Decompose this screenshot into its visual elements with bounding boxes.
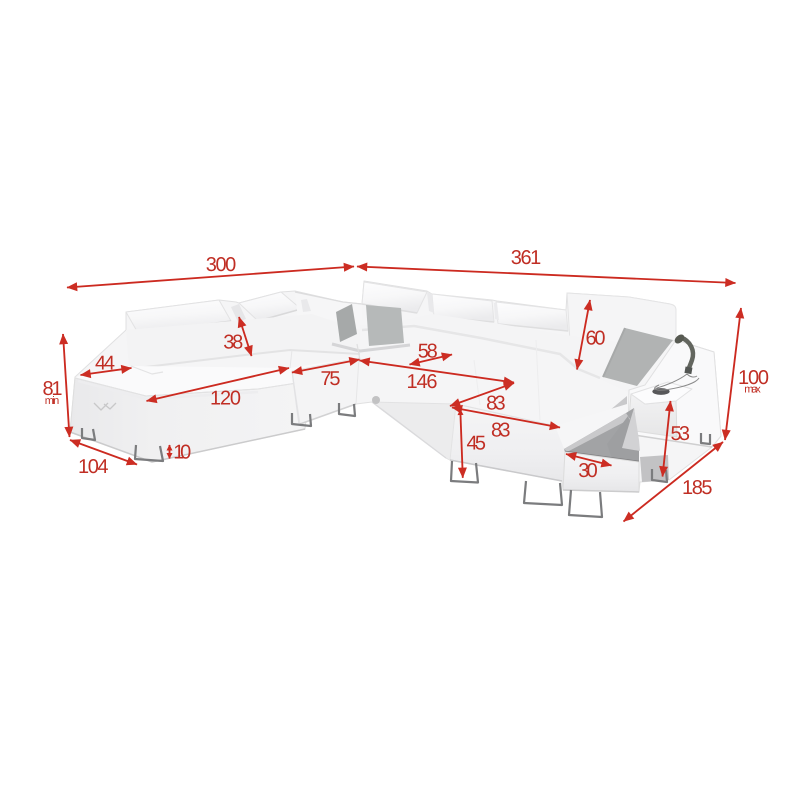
svg-text:38: 38 — [223, 332, 243, 354]
svg-text:max: max — [744, 384, 761, 396]
svg-text:300: 300 — [206, 254, 237, 276]
svg-text:83: 83 — [491, 420, 511, 442]
svg-text:60: 60 — [586, 328, 606, 350]
svg-text:83: 83 — [486, 393, 506, 415]
svg-text:75: 75 — [321, 368, 341, 390]
svg-text:361: 361 — [511, 247, 542, 269]
svg-text:104: 104 — [78, 456, 109, 478]
svg-text:min: min — [45, 395, 60, 407]
svg-text:45: 45 — [467, 433, 487, 455]
svg-text:185: 185 — [682, 477, 713, 499]
svg-text:58: 58 — [418, 341, 438, 363]
svg-text:10: 10 — [173, 442, 191, 464]
svg-text:120: 120 — [210, 388, 241, 410]
svg-text:30: 30 — [578, 460, 598, 482]
svg-text:146: 146 — [407, 371, 438, 393]
svg-text:44: 44 — [95, 353, 115, 375]
svg-text:53: 53 — [670, 423, 690, 445]
